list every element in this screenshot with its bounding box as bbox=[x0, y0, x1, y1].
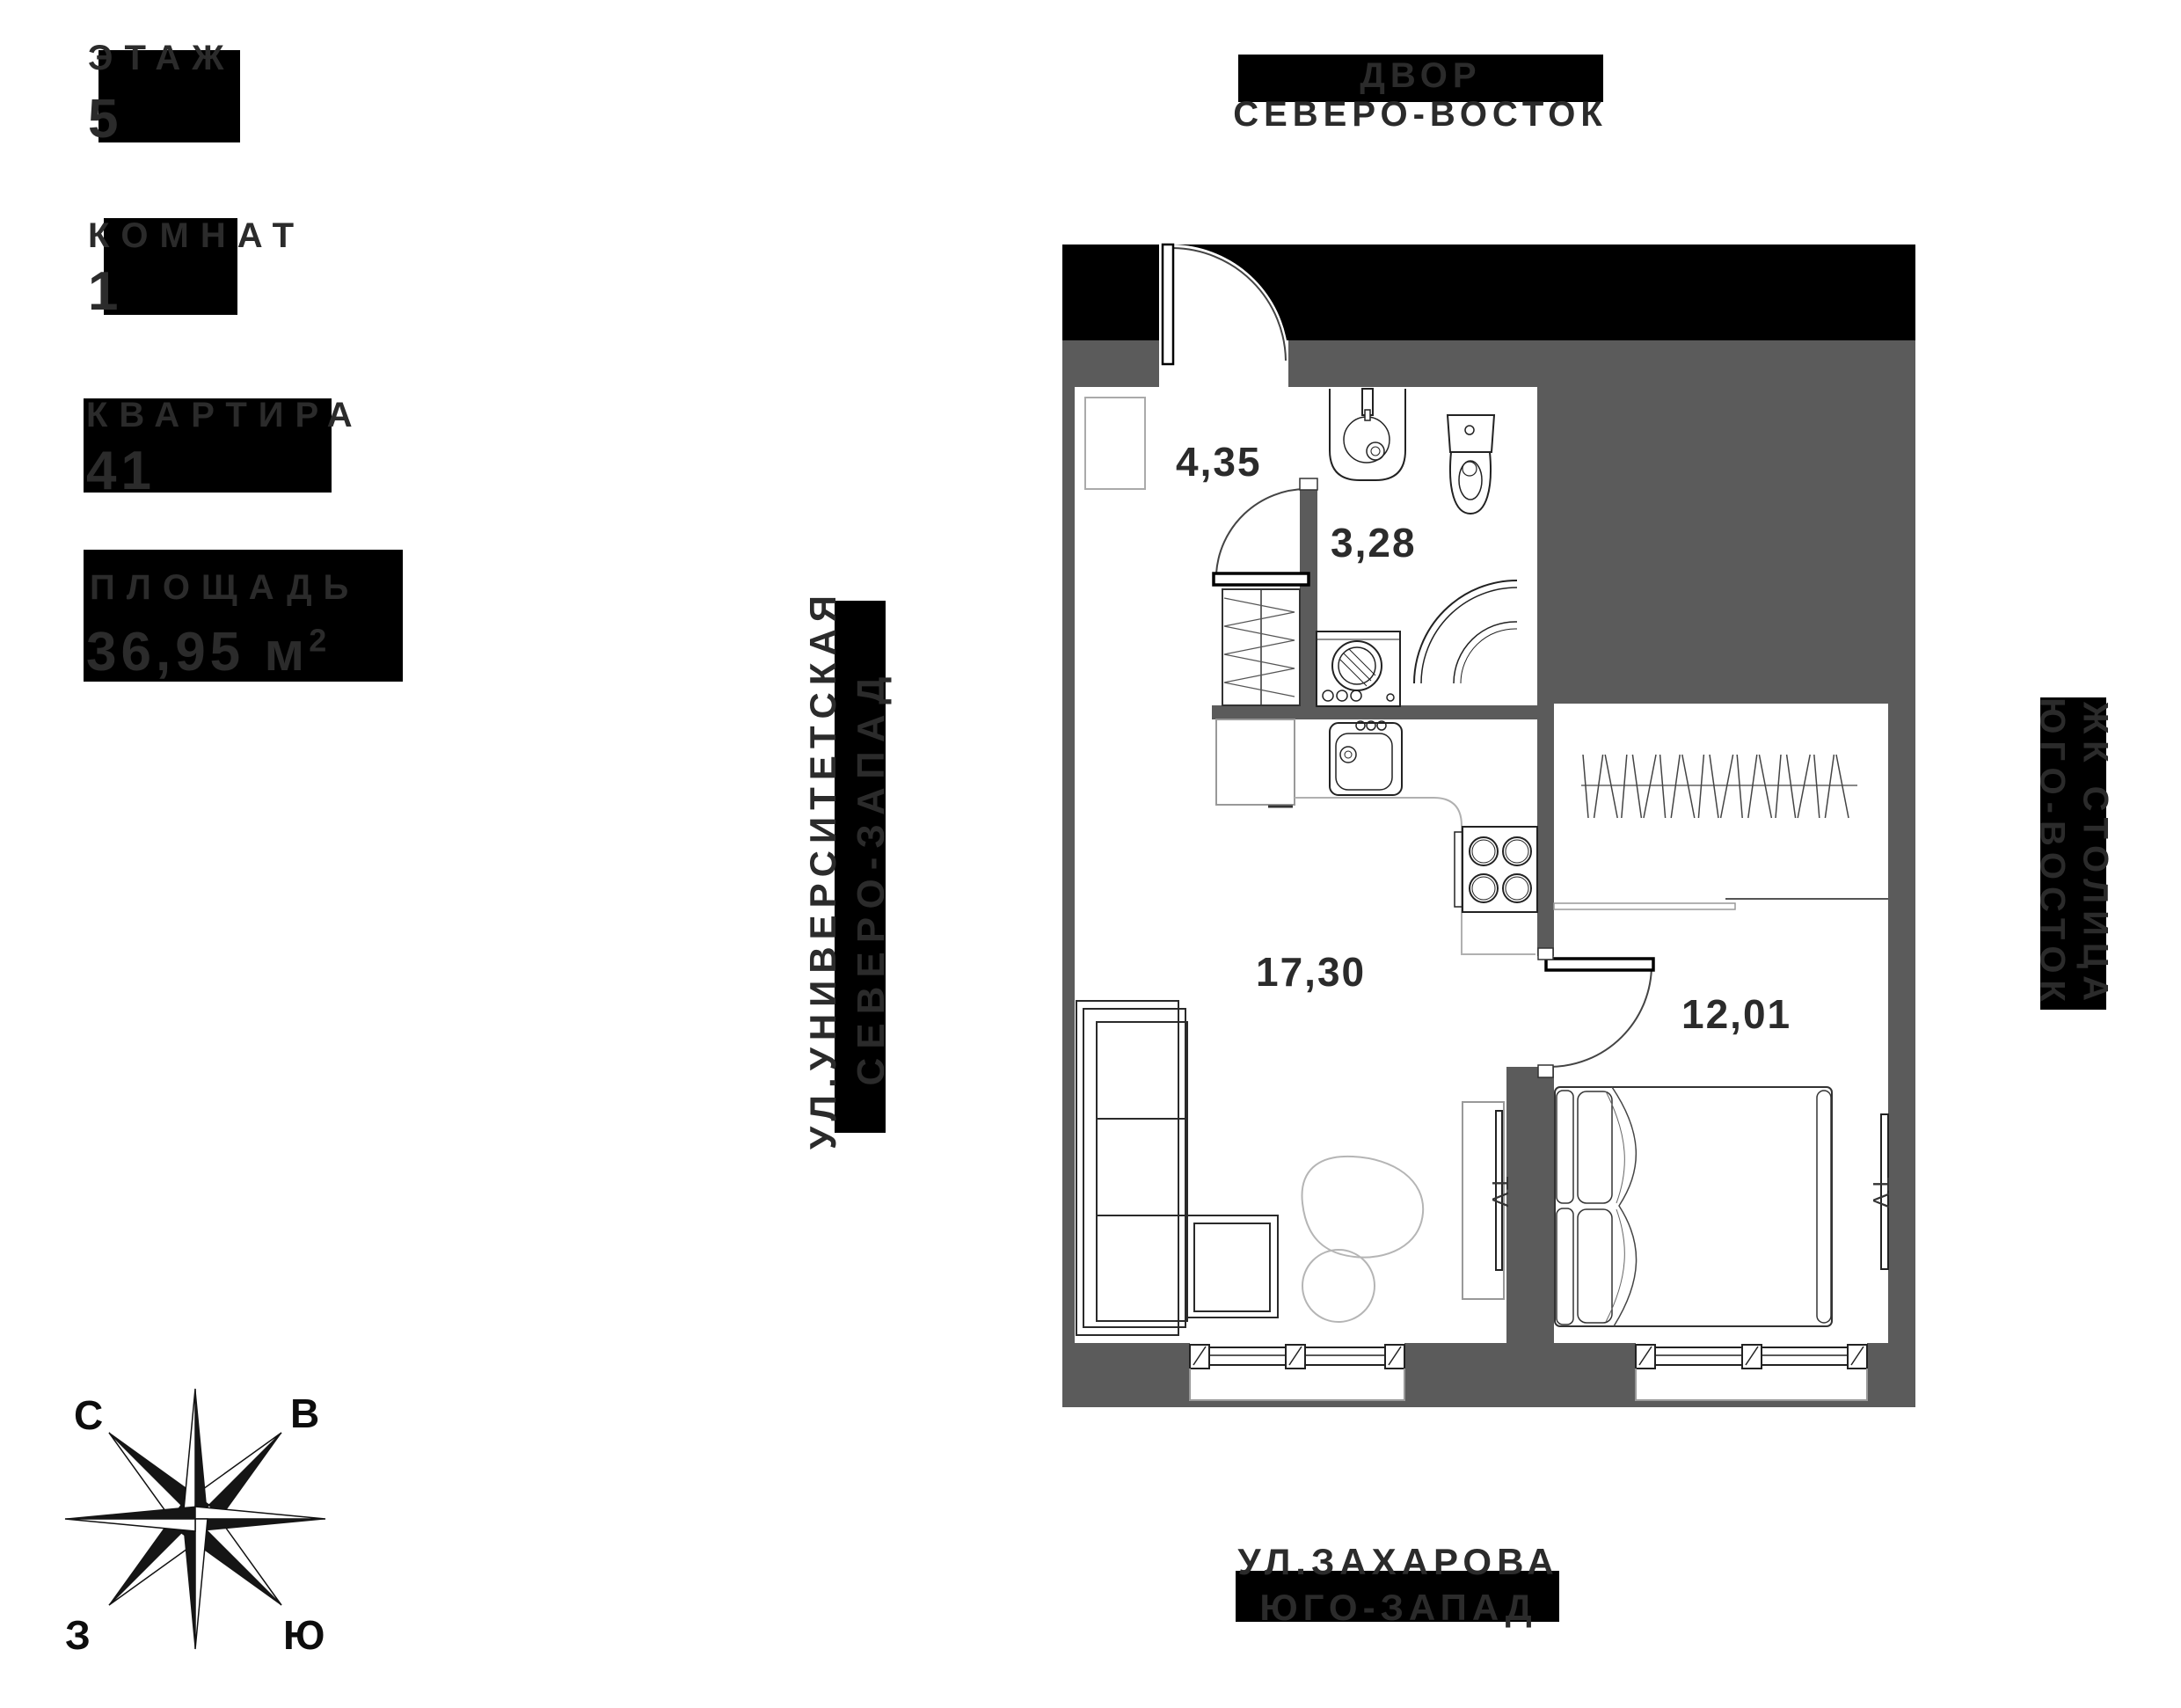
wall-bath-kitchen bbox=[1212, 705, 1539, 719]
pillow bbox=[1578, 1091, 1612, 1203]
kitchen-counter bbox=[1295, 798, 1535, 954]
coffee-table bbox=[1302, 1157, 1424, 1322]
tv-living-label: TV bbox=[1487, 1176, 1514, 1208]
hall-closet bbox=[1222, 589, 1300, 705]
bedroom-door bbox=[1538, 948, 1653, 1077]
floor-plan-page: ЭТАЖ 5 КОМНАТ 1 КВАРТИРА 41 ПЛОЩАДЬ 36,9… bbox=[0, 0, 2181, 1708]
fridge bbox=[1216, 719, 1295, 805]
bed bbox=[1555, 1087, 1832, 1326]
stove bbox=[1455, 827, 1537, 912]
wall-bath-stub bbox=[1300, 490, 1317, 705]
wall-left bbox=[1062, 340, 1075, 1407]
tv-bedroom-label: TV bbox=[1868, 1177, 1894, 1209]
hallway-area-label: 4,35 bbox=[1176, 439, 1262, 485]
toilet bbox=[1448, 415, 1494, 514]
walls bbox=[1062, 340, 1915, 1407]
floor-plan-svg: 4,35 3,28 17,30 12,01 TV TV bbox=[0, 0, 2181, 1708]
bedroom-wardrobe bbox=[1554, 755, 1888, 909]
washing-machine bbox=[1317, 631, 1400, 706]
bathroom-sink bbox=[1330, 389, 1405, 480]
wall-block-topright bbox=[1537, 340, 1915, 704]
living-area-label: 17,30 bbox=[1256, 949, 1366, 995]
shower bbox=[1414, 580, 1517, 683]
sofa bbox=[1076, 1001, 1278, 1335]
wall-right bbox=[1888, 704, 1915, 1407]
pillow bbox=[1578, 1209, 1612, 1323]
compass-rose bbox=[65, 1389, 325, 1649]
bathroom-area-label: 3,28 bbox=[1331, 520, 1417, 566]
bedroom-area-label: 12,01 bbox=[1681, 991, 1791, 1037]
footboard bbox=[1817, 1091, 1831, 1323]
hall-cabinet bbox=[1085, 398, 1145, 489]
wall-divider-upper bbox=[1537, 704, 1554, 956]
kitchen-sink bbox=[1330, 721, 1402, 795]
